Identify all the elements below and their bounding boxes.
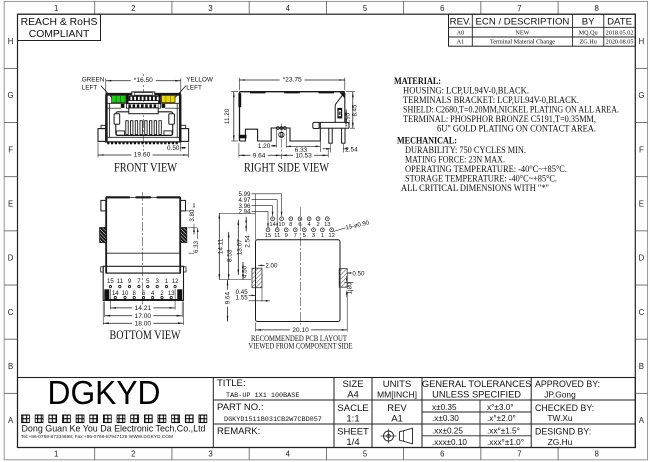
svg-text:8: 8 <box>595 4 599 13</box>
svg-text:11.20: 11.20 <box>224 108 231 124</box>
svg-text:.xx°±1.5°: .xx°±1.5° <box>487 427 520 436</box>
svg-text:14: 14 <box>269 222 276 228</box>
svg-text:SHIELD: C2680,T=0.20MM,NICKEL: SHIELD: C2680,T=0.20MM,NICKEL PLATING ON… <box>403 106 619 116</box>
svg-text:4: 4 <box>286 450 291 459</box>
svg-text:JP.Gong: JP.Gong <box>544 389 576 399</box>
svg-text:B: B <box>8 362 13 371</box>
svg-text:6: 6 <box>440 4 444 13</box>
svg-text:x°±3.0°: x°±3.0° <box>487 403 514 412</box>
svg-text:C: C <box>639 308 645 317</box>
svg-text:1: 1 <box>54 4 58 13</box>
svg-text:19.60: 19.60 <box>134 152 151 159</box>
svg-text:3: 3 <box>312 233 315 239</box>
svg-text:DATE: DATE <box>607 16 632 27</box>
svg-text:A1: A1 <box>457 39 465 46</box>
svg-text:.xxx±0.10: .xxx±0.10 <box>432 438 467 447</box>
svg-text:13.07: 13.07 <box>236 239 243 255</box>
svg-text:6U" GOLD PLATING ON CONTACT AR: 6U" GOLD PLATING ON CONTACT AREA. <box>437 125 596 135</box>
svg-text:F: F <box>8 145 13 154</box>
svg-text:5: 5 <box>303 233 306 239</box>
svg-text:2: 2 <box>316 222 319 228</box>
svg-text:9: 9 <box>285 233 288 239</box>
svg-text:1.20: 1.20 <box>258 143 271 150</box>
svg-text:MQ.Qu: MQ.Qu <box>579 29 598 36</box>
svg-text:13: 13 <box>324 222 330 228</box>
svg-text:DGKYD: DGKYD <box>48 375 161 412</box>
svg-text:SHEET: SHEET <box>337 427 369 438</box>
svg-text:ECN / DESCRIPTION: ECN / DESCRIPTION <box>476 16 570 27</box>
svg-text:E: E <box>8 200 13 209</box>
svg-text:G: G <box>8 91 14 100</box>
svg-text:x±0.35: x±0.35 <box>432 403 457 412</box>
svg-text:8: 8 <box>289 222 292 228</box>
svg-text:Tel:+86-0769-87334698; Fax:+86: Tel:+86-0769-87334698; Fax:+86-0769-8794… <box>21 434 173 439</box>
svg-text:14.11: 14.11 <box>217 238 224 254</box>
svg-text:ZG.Hu: ZG.Hu <box>580 39 597 46</box>
svg-text:9.64: 9.64 <box>225 292 232 305</box>
svg-text:FRONT VIEW: FRONT VIEW <box>114 160 177 174</box>
svg-text:F: F <box>639 145 644 154</box>
svg-text:OPERATING TEMPERATURE: -40°C~+: OPERATING TEMPERATURE: -40°C~+85°C. <box>405 164 567 175</box>
svg-text:2.54: 2.54 <box>345 146 358 153</box>
svg-text:C: C <box>8 308 14 317</box>
svg-text:G: G <box>638 91 644 100</box>
svg-text:11: 11 <box>274 233 280 239</box>
svg-text:REACH & RoHS: REACH & RoHS <box>21 17 98 28</box>
svg-text:7: 7 <box>517 4 521 13</box>
svg-text:E: E <box>639 200 644 209</box>
svg-text:UNITS: UNITS <box>383 379 412 390</box>
svg-text:1/4: 1/4 <box>346 437 359 448</box>
svg-text:MATING FORCE: 23N MAX.: MATING FORCE: 23N MAX. <box>405 156 505 166</box>
svg-text:COMPLIANT: COMPLIANT <box>29 29 90 40</box>
svg-text:MATERIAL:: MATERIAL: <box>394 77 441 87</box>
svg-text:18.00: 18.00 <box>135 321 152 328</box>
svg-text:SACLE: SACLE <box>337 403 368 414</box>
svg-text:TAB-UP 1X1 100BASE: TAB-UP 1X1 100BASE <box>226 392 299 400</box>
svg-text:H: H <box>8 37 14 46</box>
svg-text:DESIGND BY:: DESIGND BY: <box>535 426 591 436</box>
svg-text:UNLESS SPECIFIED: UNLESS SPECIFIED <box>432 390 521 400</box>
svg-text:1.55: 1.55 <box>236 295 249 302</box>
svg-text:.x±0.30: .x±0.30 <box>432 414 459 423</box>
svg-text:.xxx°±1.0°: .xxx°±1.0° <box>487 438 524 447</box>
svg-text:11: 11 <box>117 279 124 285</box>
svg-text:STORAGE TEMPERATURE: -40°C~+85: STORAGE TEMPERATURE: -40°C~+85°C. <box>405 174 557 185</box>
svg-text:14.21: 14.21 <box>135 305 152 312</box>
svg-text:MECHANICAL:: MECHANICAL: <box>397 137 457 147</box>
svg-text:2.54: 2.54 <box>245 235 252 248</box>
svg-text:8: 8 <box>595 450 599 459</box>
svg-text:.x°±2.0°: .x°±2.0° <box>487 414 516 423</box>
svg-text:DGKYD1511B031CB2W7CBD057: DGKYD1511B031CB2W7CBD057 <box>224 416 322 424</box>
svg-text:GENERAL TOLERANCES: GENERAL TOLERANCES <box>422 379 531 389</box>
svg-text:DURABILITY: 750 CYCLES MIN.: DURABILITY: 750 CYCLES MIN. <box>405 146 526 156</box>
svg-text:REV: REV <box>387 403 407 414</box>
svg-text:10: 10 <box>278 222 284 228</box>
svg-text:3: 3 <box>208 450 212 459</box>
svg-text:TERMINALS BRACKET: LCP,UL94V-0: TERMINALS BRACKET: LCP,UL94V-0,BLACK. <box>403 96 579 106</box>
svg-text:15: 15 <box>107 279 114 285</box>
svg-text:RIGHT SIDE VIEW: RIGHT SIDE VIEW <box>244 160 329 174</box>
svg-text:0.50: 0.50 <box>167 145 180 152</box>
svg-text:8.45: 8.45 <box>352 104 358 116</box>
svg-text:A: A <box>8 416 14 425</box>
svg-text:8.53: 8.53 <box>227 249 234 262</box>
svg-text:4.50: 4.50 <box>242 265 249 278</box>
svg-text:6: 6 <box>298 222 301 228</box>
svg-text:A1: A1 <box>391 413 403 424</box>
svg-text:7: 7 <box>294 233 297 239</box>
svg-text:HOUSING: LCP,UL94V-0,BLACK.: HOUSING: LCP,UL94V-0,BLACK. <box>403 87 529 97</box>
svg-text:BOTTOM VIEW: BOTTOM VIEW <box>110 328 181 342</box>
svg-text:TW.Xu: TW.Xu <box>547 413 572 423</box>
svg-text:ALL CRITICAL DIMENSIONS WITH ": ALL CRITICAL DIMENSIONS WITH "*" <box>401 184 549 194</box>
svg-text:PART NO.:: PART NO.: <box>217 402 263 413</box>
svg-text:1:1: 1:1 <box>346 413 359 424</box>
svg-text:REMARK:: REMARK: <box>217 426 260 437</box>
svg-text:6.33: 6.33 <box>193 240 200 253</box>
svg-text:15: 15 <box>265 233 271 239</box>
svg-text:0.50: 0.50 <box>352 270 365 277</box>
svg-text:4: 4 <box>286 4 291 13</box>
svg-text:NEW: NEW <box>515 29 529 36</box>
svg-text:2018.05.02: 2018.05.02 <box>606 29 634 36</box>
svg-text:2: 2 <box>131 4 135 13</box>
svg-text:2: 2 <box>131 450 135 459</box>
svg-text:17.00: 17.00 <box>135 313 152 320</box>
svg-text:LEFT: LEFT <box>82 85 98 92</box>
svg-text:3: 3 <box>208 4 212 13</box>
svg-text:3.80: 3.80 <box>189 209 196 222</box>
svg-text:D: D <box>8 254 14 263</box>
svg-text:2.00: 2.00 <box>265 263 278 270</box>
svg-text:2020.08.05: 2020.08.05 <box>606 39 634 46</box>
svg-text:D: D <box>639 254 645 263</box>
svg-text:YELLOW: YELLOW <box>186 77 214 84</box>
svg-text:*2.95: *2.95 <box>346 112 352 127</box>
svg-text:*23.75: *23.75 <box>283 76 302 83</box>
svg-text:H: H <box>639 37 645 46</box>
svg-text:GREEN: GREEN <box>82 77 105 84</box>
svg-text:ZG.Hu: ZG.Hu <box>548 437 573 447</box>
svg-text:5: 5 <box>363 450 368 459</box>
svg-text:TERMINAL: PHOSPHOR BRONZE C519: TERMINAL: PHOSPHOR BRONZE C5191,T=0.35MM… <box>403 115 596 125</box>
svg-text:2.94: 2.94 <box>238 209 251 216</box>
svg-text:1: 1 <box>54 450 58 459</box>
svg-text:TITLE:: TITLE: <box>217 378 246 389</box>
svg-text:MM[INCH]: MM[INCH] <box>377 390 417 400</box>
svg-text:10.53: 10.53 <box>295 153 312 160</box>
svg-text:A: A <box>639 416 645 425</box>
svg-text:.xx±0.25: .xx±0.25 <box>432 427 463 436</box>
svg-text:SIZE: SIZE <box>342 379 363 390</box>
svg-text:VIEWED FROM COMPONENT SIDE: VIEWED FROM COMPONENT SIDE <box>249 341 353 351</box>
svg-text:*16.50: *16.50 <box>134 77 153 84</box>
svg-text:9.64: 9.64 <box>253 153 266 160</box>
svg-text:REV.: REV. <box>450 16 472 27</box>
svg-text:7: 7 <box>517 450 521 459</box>
svg-text:A0: A0 <box>457 29 465 36</box>
svg-text:LEFT: LEFT <box>186 85 202 92</box>
svg-text:A4: A4 <box>347 390 359 401</box>
svg-text:APPROVED BY:: APPROVED BY: <box>535 379 600 389</box>
svg-text:Terminal Material Change: Terminal Material Change <box>490 39 555 46</box>
svg-text:6: 6 <box>440 450 444 459</box>
svg-text:B: B <box>639 362 644 371</box>
svg-text:1: 1 <box>321 233 324 239</box>
svg-text:Dong Guan Ke You Da Electronic: Dong Guan Ke You Da Electronic Tech.Co.,… <box>22 424 206 434</box>
svg-text:12: 12 <box>328 233 334 239</box>
svg-text:12: 12 <box>172 279 179 285</box>
svg-text:CHECKED BY:: CHECKED BY: <box>535 403 594 413</box>
svg-text:BY: BY <box>582 16 595 27</box>
svg-text:5: 5 <box>363 4 368 13</box>
